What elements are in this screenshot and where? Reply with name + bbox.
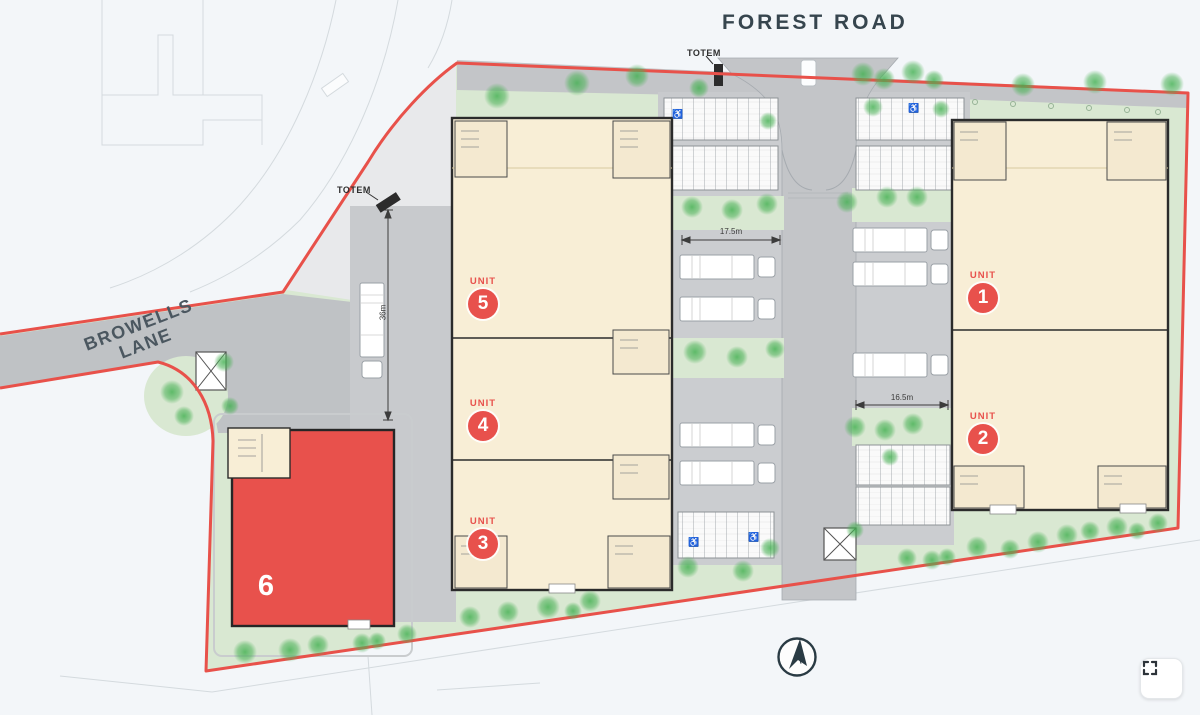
accessible-parking-icon: ♿ <box>688 538 699 547</box>
unit-5-word: UNIT <box>468 276 498 287</box>
unit-2-number: 2 <box>968 424 998 454</box>
totem-label-left: TOTEM <box>337 185 371 195</box>
fullscreen-button[interactable] <box>1140 658 1183 699</box>
unit-1-marker[interactable]: UNIT 1 <box>968 270 998 313</box>
unit-3-word: UNIT <box>468 516 498 527</box>
unit-4-marker[interactable]: UNIT 4 <box>468 398 498 441</box>
fullscreen-icon <box>1141 659 1159 677</box>
unit-2-word: UNIT <box>968 411 998 422</box>
site-plan-graphic: N <box>0 0 1200 715</box>
dimension-right-yard: 16.5m <box>891 393 913 402</box>
unit-1-word: UNIT <box>968 270 998 281</box>
site-plan-canvas: N FOREST ROAD BROWELLS LANE TOTEM TOTEM … <box>0 0 1200 715</box>
unit-6-marker[interactable]: 6 <box>246 570 286 603</box>
accessible-parking-icon: ♿ <box>748 533 759 542</box>
accessible-parking-icon: ♿ <box>672 110 683 119</box>
unit-1-number: 1 <box>968 283 998 313</box>
unit-4-word: UNIT <box>468 398 498 409</box>
unit-5-marker[interactable]: UNIT 5 <box>468 276 498 319</box>
totem-label-top: TOTEM <box>687 48 721 58</box>
north-arrow-icon: N <box>779 639 816 676</box>
unit-2-marker[interactable]: UNIT 2 <box>968 411 998 454</box>
unit-5-number: 5 <box>468 289 498 319</box>
unit-4-number: 4 <box>468 411 498 441</box>
unit-3-number: 3 <box>468 529 498 559</box>
dimension-staging-depth: 36m <box>378 305 387 321</box>
dimension-left-yard: 17.5m <box>720 227 742 236</box>
unit-3-marker[interactable]: UNIT 3 <box>468 516 498 559</box>
accessible-parking-icon: ♿ <box>908 104 919 113</box>
forest-road-label: FOREST ROAD <box>722 11 908 35</box>
